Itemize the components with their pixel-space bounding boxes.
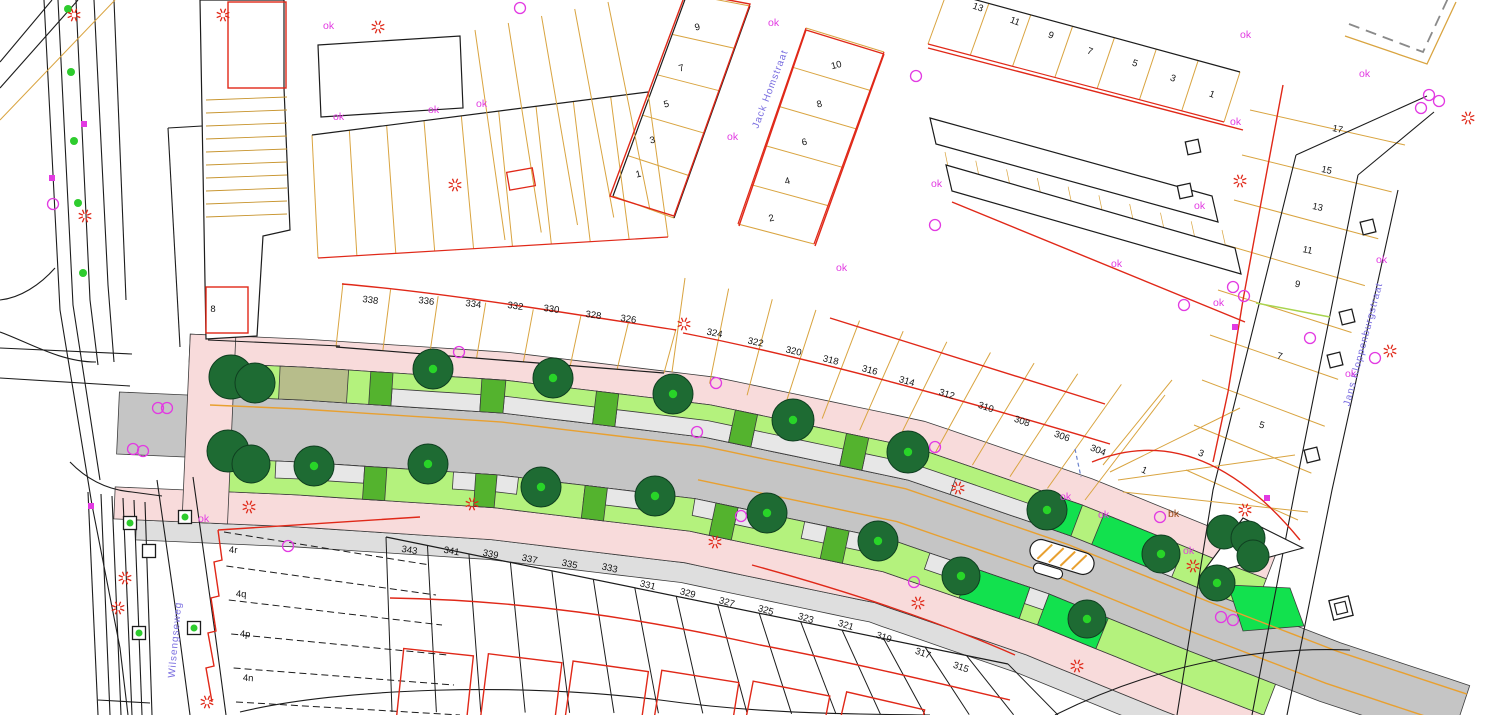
asterisk-icon (372, 28, 376, 30)
boundary-line (1296, 96, 1427, 155)
asterisk-icon (119, 575, 123, 577)
tree-center-dot (310, 462, 318, 470)
parcel-number: 1 (634, 169, 642, 181)
boundary-red (739, 30, 884, 246)
asterisk-icon (1470, 119, 1474, 121)
parcel-number: 319 (875, 630, 893, 645)
parcel-divider (1139, 49, 1156, 100)
asterisk-icon (87, 217, 91, 219)
parcel-number: 4 (783, 176, 791, 188)
parcel-number: 13 (1311, 201, 1324, 214)
parcel-divider (508, 23, 541, 233)
parcel-number: 4q (236, 589, 247, 601)
building-outline (831, 692, 924, 715)
asterisk-icon (1237, 183, 1239, 187)
boundary-line (101, 494, 110, 715)
parcel-number: 308 (1013, 414, 1032, 430)
parcel-number: 321 (837, 618, 855, 633)
ok-annotation: ok (333, 111, 345, 123)
survey-circle-icon (1434, 96, 1445, 107)
building-outline (507, 168, 536, 190)
parcel-number: 326 (620, 313, 637, 326)
parcel-divider (664, 329, 676, 373)
boundary-line (98, 700, 150, 703)
boundary-red (1213, 85, 1283, 462)
planting-bed-north (369, 372, 393, 406)
parcel-number: 5 (1258, 420, 1266, 432)
green-dot-icon (74, 199, 82, 207)
boundary-line (76, 0, 98, 365)
parcel-divider (523, 309, 533, 362)
parcel-number: 1 (1139, 465, 1148, 477)
parcel-divider (427, 545, 436, 712)
asterisk-icon (82, 218, 84, 222)
survey-square-icon (1264, 495, 1270, 501)
survey-circle-icon (1416, 103, 1427, 114)
parcel-number: 10 (830, 59, 843, 72)
parcel-divider (1182, 61, 1198, 111)
parcel-number: 335 (561, 558, 579, 572)
parcel-rail (318, 237, 668, 258)
asterisk-icon (208, 704, 210, 708)
asterisk-icon (1384, 352, 1388, 354)
parcel-divider (349, 130, 357, 255)
asterisk-icon (1247, 507, 1251, 509)
parcel-number: 2 (767, 213, 775, 225)
asterisk-icon (122, 572, 124, 576)
planting-bed-north (480, 379, 506, 413)
parcel-divider (925, 647, 969, 715)
asterisk-icon (1462, 115, 1466, 117)
parcel-number: 9 (1294, 279, 1301, 291)
survey-circle-icon (1228, 282, 1239, 293)
ok-annotation: ok (1359, 68, 1371, 80)
ok-annotation: ok (323, 20, 335, 32)
survey-square-icon (49, 175, 55, 181)
tree-center-dot (763, 509, 771, 517)
asterisk-icon (449, 186, 453, 188)
building-block (200, 0, 290, 339)
survey-circle-icon (48, 199, 59, 210)
asterisk-icon (127, 579, 131, 581)
asterisk-icon (1392, 348, 1396, 350)
boundary-line (0, 378, 130, 386)
parcel-rail (613, 0, 687, 196)
parcel-number: 7 (677, 63, 685, 75)
asterisk-icon (122, 580, 124, 584)
parcel-divider (1186, 470, 1298, 520)
ok-annotation: ok (198, 513, 210, 525)
parcel-divider (236, 702, 460, 715)
parcel-divider (801, 622, 836, 714)
parcel-divider (386, 537, 392, 712)
boundary-line (168, 126, 202, 128)
asterisk-icon (1242, 178, 1246, 180)
parcel-divider (676, 596, 703, 713)
lamppost-dot-icon (182, 514, 189, 521)
parcel-divider (1202, 380, 1325, 426)
page: { "title": "Cadastral street plan with p… (0, 0, 1491, 715)
asterisk-icon (686, 321, 690, 323)
parcel-divider (672, 278, 685, 372)
boundary-dashed (1349, 0, 1450, 52)
asterisk-icon (681, 318, 683, 322)
boundary-line (0, 0, 52, 62)
asterisk-icon (372, 24, 376, 26)
asterisk-icon (71, 9, 73, 13)
ok-annotation: ok (1376, 254, 1388, 266)
parcel-number: 336 (418, 295, 435, 308)
ok-annotation: ok (1240, 29, 1252, 41)
asterisk-icon (1241, 183, 1243, 187)
asterisk-icon (375, 21, 377, 25)
parcel-divider (687, 0, 750, 6)
survey-circle-icon (1305, 333, 1316, 344)
tree-center-dot (537, 483, 545, 491)
asterisk-icon (456, 187, 458, 191)
asterisk-icon (119, 579, 123, 581)
asterisk-icon (681, 326, 683, 330)
ok-annotation: ok (931, 178, 943, 190)
parcel-number: 315 (952, 660, 971, 676)
ok-annotation: ok (1345, 368, 1357, 380)
parcel-divider (617, 322, 628, 369)
asterisk-icon (127, 575, 131, 577)
tree-center-dot (1043, 506, 1051, 514)
asterisk-icon (68, 12, 72, 14)
parcel-divider (226, 566, 436, 595)
parcel-number: 304 (1089, 443, 1108, 459)
asterisk-icon (71, 17, 73, 21)
asterisk-icon (449, 182, 453, 184)
survey-circle-icon (930, 220, 941, 231)
asterisk-icon (685, 326, 687, 330)
asterisk-icon (1392, 352, 1396, 354)
asterisk-icon (1387, 345, 1389, 349)
boundary-line (94, 0, 114, 362)
boundary-khaki (1345, 2, 1456, 64)
tree-center-dot (789, 416, 797, 424)
asterisk-icon (1391, 353, 1393, 357)
parcel-divider (312, 135, 318, 258)
ok-annotation: ok (1213, 297, 1225, 309)
parcel-number: 13 (971, 1, 985, 15)
parcel-number: 4p (240, 629, 251, 641)
tree-center-dot (1083, 615, 1091, 623)
parcel-number: 327 (718, 595, 736, 610)
parcel-number: 3 (1168, 73, 1177, 85)
asterisk-icon (456, 179, 458, 183)
lamppost-dot-icon (127, 520, 134, 527)
parcel-number: 330 (543, 303, 560, 316)
boundary-red (830, 318, 1105, 404)
tree-center-dot (651, 492, 659, 500)
survey-square-icon (88, 503, 94, 509)
parcel-number: 314 (898, 374, 916, 389)
tree-center-dot (1157, 550, 1165, 558)
green-dot-icon (70, 137, 78, 145)
parcel-divider (336, 283, 343, 347)
parcel-number: 11 (1302, 244, 1314, 257)
asterisk-icon (1239, 507, 1243, 509)
survey-circle-icon (911, 71, 922, 82)
parcel-divider (575, 9, 614, 218)
parcel-divider (657, 75, 719, 91)
boundary-line (0, 268, 55, 300)
parcel-number: 3 (648, 135, 656, 147)
asterisk-icon (1469, 120, 1471, 124)
tree-center-dot (874, 537, 882, 545)
tree-center-dot (904, 448, 912, 456)
asterisk-icon (1462, 119, 1466, 121)
asterisk-icon (457, 182, 461, 184)
tree-icon (235, 363, 275, 403)
ok-annotation: ok (836, 262, 848, 274)
asterisk-icon (379, 29, 381, 33)
parcel-number: 17 (1331, 123, 1344, 136)
asterisk-icon (79, 217, 83, 219)
lamppost-dot-icon (136, 630, 143, 637)
square-marker-icon (1327, 352, 1343, 368)
ok-annotation: ok (1230, 116, 1242, 128)
asterisk-icon (1246, 504, 1248, 508)
boundary-line (44, 0, 128, 715)
asterisk-icon (1465, 120, 1467, 124)
survey-circle-icon (1179, 300, 1190, 311)
asterisk-icon (79, 213, 83, 215)
asterisk-icon (375, 29, 377, 33)
asterisk-icon (1242, 512, 1244, 516)
parcel-number: 334 (465, 298, 482, 311)
parcel-divider (1103, 380, 1172, 465)
parcel-number: 5 (1130, 58, 1139, 70)
asterisk-icon (457, 186, 461, 188)
parcel-divider (383, 290, 391, 351)
tree-center-dot (669, 390, 677, 398)
parcel-divider (234, 668, 454, 685)
parcel-divider (387, 125, 396, 253)
green-dot-icon (79, 269, 87, 277)
parcel-number: 1 (1207, 89, 1216, 101)
parcel-divider (475, 30, 505, 240)
parcel-number: 7 (1085, 46, 1094, 58)
parcel-divider (718, 605, 747, 714)
asterisk-icon (1387, 353, 1389, 357)
asterisk-icon (209, 699, 213, 701)
parcel-number: 6 (800, 137, 808, 149)
parcel-number: 316 (861, 363, 879, 378)
asterisk-icon (1234, 182, 1238, 184)
asterisk-icon (204, 704, 206, 708)
parcel-number: 318 (822, 353, 840, 368)
parcel-divider (765, 146, 842, 168)
planting-bed-south (363, 466, 387, 500)
ok-annotation: ok (1098, 509, 1110, 521)
parcel-number: 9 (693, 22, 701, 34)
asterisk-icon (452, 187, 454, 191)
asterisk-icon (1469, 112, 1471, 116)
parcel-rail (814, 52, 884, 244)
asterisk-icon (1242, 182, 1246, 184)
building-outline (564, 661, 649, 715)
map-canvas: Cadastral street plan with planting desi… (0, 0, 1491, 715)
survey-square-icon (1232, 324, 1238, 330)
survey-circle-icon (515, 3, 526, 14)
parcel-number: 11 (1008, 15, 1021, 29)
asterisk-icon (87, 213, 91, 215)
parcel-number: 310 (977, 400, 995, 415)
asterisk-icon (208, 696, 210, 700)
parcel-divider (635, 588, 659, 713)
tree-center-dot (424, 460, 432, 468)
tree-icon (1237, 540, 1269, 572)
ok-annotation: ok (1194, 200, 1206, 212)
green-dot-icon (67, 68, 75, 76)
parcel-number: 312 (938, 387, 956, 402)
asterisk-icon (1246, 512, 1248, 516)
planting-bed-south (581, 485, 607, 521)
asterisk-icon (1239, 511, 1243, 513)
parcel-rail (738, 28, 806, 224)
asterisk-icon (120, 605, 124, 607)
parcel-divider (648, 92, 668, 237)
parcel-divider (1097, 38, 1114, 89)
asterisk-icon (1391, 345, 1393, 349)
asterisk-icon (1465, 112, 1467, 116)
asterisk-icon (68, 16, 72, 18)
parcel-divider (1055, 26, 1073, 77)
ok-annotation: ok (1111, 258, 1123, 270)
parcel-number: 4r (229, 545, 238, 556)
asterisk-icon (1384, 348, 1388, 350)
parcel-divider (229, 600, 442, 625)
tree-center-dot (429, 365, 437, 373)
asterisk-icon (1237, 175, 1239, 179)
asterisk-icon (201, 699, 205, 701)
square-marker-icon (1360, 219, 1376, 235)
boundary-line (0, 0, 78, 88)
parcel-number: 328 (585, 309, 602, 322)
asterisk-icon (201, 703, 205, 705)
lamppost-dot-icon (191, 625, 198, 632)
asterisk-icon (120, 609, 124, 611)
parcel-number: 325 (757, 603, 775, 618)
parcel-number: 4n (243, 673, 254, 685)
parcel-number: 332 (507, 300, 524, 313)
parcel-number: 338 (362, 294, 379, 307)
ok-annotation: ok (1183, 545, 1195, 557)
boundary-red (610, 0, 750, 216)
ok-annotation: ok (727, 131, 739, 143)
parcel-divider (1110, 408, 1240, 472)
asterisk-icon (119, 610, 121, 614)
asterisk-icon (380, 24, 384, 26)
parcel-divider (542, 16, 578, 225)
ok-annotation: ok (1060, 491, 1072, 503)
map-viewport: Cadastral street plan with planting desi… (0, 0, 1491, 715)
survey-circle-icon (1370, 353, 1381, 364)
tree-center-dot (957, 572, 965, 580)
parcel-divider (593, 579, 614, 713)
parcel-number: 8 (210, 304, 215, 315)
asterisk-icon (1242, 504, 1244, 508)
parcel-divider (461, 116, 473, 249)
parcel-number: 8 (815, 99, 823, 111)
square-marker-icon (1339, 309, 1355, 325)
parcel-divider (1224, 72, 1240, 122)
parcel-number: 323 (797, 611, 815, 626)
building-outline (480, 654, 562, 715)
asterisk-icon (204, 696, 206, 700)
nested-square-icon (1329, 596, 1353, 620)
ok-annotation: ok (428, 104, 440, 116)
parcel-number: 9 (1046, 30, 1055, 42)
parcel-number: 343 (401, 544, 418, 557)
ok-annotation: ok (476, 98, 488, 110)
asterisk-icon (686, 325, 690, 327)
parcel-divider (477, 303, 486, 358)
survey-square-icon (81, 121, 87, 127)
parcel-number: 329 (679, 586, 697, 601)
square-marker-icon (1185, 139, 1200, 154)
parcel-divider (231, 634, 448, 655)
street-name-label: Wilsengseweg (167, 601, 185, 678)
parcel-number: 331 (639, 578, 657, 593)
square-marker-icon (143, 545, 156, 558)
square-marker-icon (1304, 447, 1320, 463)
parcel-divider (570, 316, 581, 366)
green-divider-line (1256, 303, 1330, 317)
boundary-khaki (0, 0, 115, 120)
asterisk-icon (209, 703, 213, 705)
asterisk-icon (82, 210, 84, 214)
tree-center-dot (549, 374, 557, 382)
survey-circle-icon (1424, 90, 1435, 101)
boundary-line (168, 128, 180, 347)
parcel-number: 3 (1196, 448, 1205, 460)
asterisk-icon (1241, 175, 1243, 179)
parcel-number: 5 (662, 99, 670, 111)
ok-annotation: ok (768, 17, 780, 29)
square-marker-icon (1177, 183, 1192, 198)
asterisk-icon (379, 21, 381, 25)
parcel-number: 7 (1276, 351, 1284, 363)
building-block (318, 36, 463, 117)
asterisk-icon (380, 28, 384, 30)
asterisk-icon (119, 602, 121, 606)
parcel-divider (759, 613, 791, 714)
asterisk-icon (1247, 511, 1251, 513)
tree-icon (232, 445, 270, 483)
parcel-divider (928, 0, 947, 44)
street-name-label: Jans Kloppenburgstraat (1342, 281, 1386, 407)
asterisk-icon (452, 179, 454, 183)
parcel-divider (536, 106, 551, 244)
tree-center-dot (1213, 579, 1221, 587)
bk-annotation: bk (1168, 508, 1180, 520)
parcel-divider (469, 554, 481, 712)
asterisk-icon (1234, 178, 1238, 180)
parcel-divider (842, 630, 880, 714)
parcel-divider (499, 111, 513, 246)
planting-bed-north (593, 391, 619, 427)
asterisk-icon (685, 318, 687, 322)
parcel-divider (752, 185, 828, 206)
boundary-line (114, 0, 126, 300)
parcel-divider (672, 34, 735, 48)
parcel-number: 15 (1320, 164, 1333, 177)
parcel-divider (806, 28, 884, 52)
